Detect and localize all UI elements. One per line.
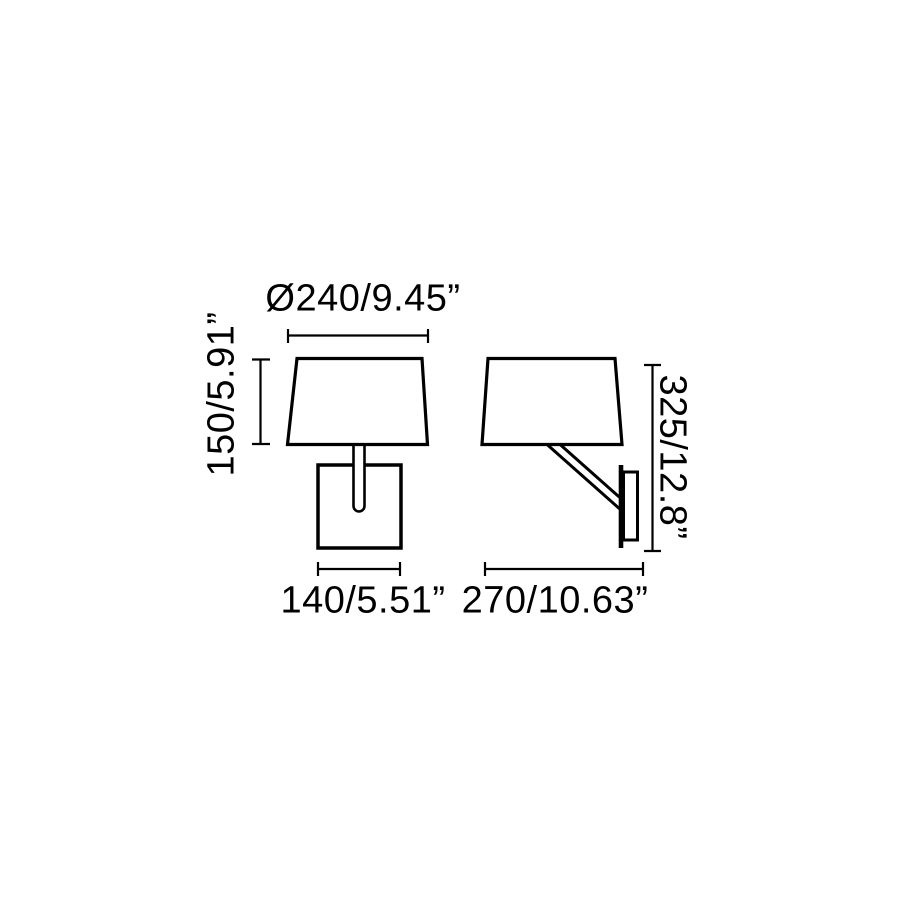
dim-label-shade-height: 150/5.91”	[201, 311, 244, 476]
dim-label-shade-diameter: Ø240/9.45”	[265, 278, 460, 321]
front-lampshade	[288, 359, 428, 445]
front-view	[288, 359, 428, 549]
dim-label-projection: 270/10.63”	[462, 580, 649, 623]
side-lampshade	[482, 359, 622, 445]
lamp-line-drawing	[0, 0, 900, 900]
dim-line-shade-height	[252, 360, 270, 445]
dim-line-projection	[485, 562, 643, 576]
dim-line-diameter	[288, 329, 428, 343]
dim-label-total-height: 325/12.8”	[651, 374, 694, 539]
dimension-diagram: Ø240/9.45” 150/5.91” 325/12.8” 140/5.51”…	[0, 0, 900, 900]
front-stem-rod	[354, 443, 365, 512]
side-arm-strut-upper	[560, 444, 620, 497]
dim-line-base-width	[318, 562, 400, 576]
side-arm-strut-lower	[547, 444, 620, 509]
dim-label-base-width: 140/5.51”	[280, 580, 445, 623]
side-view	[482, 359, 638, 549]
side-wall-box	[624, 472, 638, 540]
